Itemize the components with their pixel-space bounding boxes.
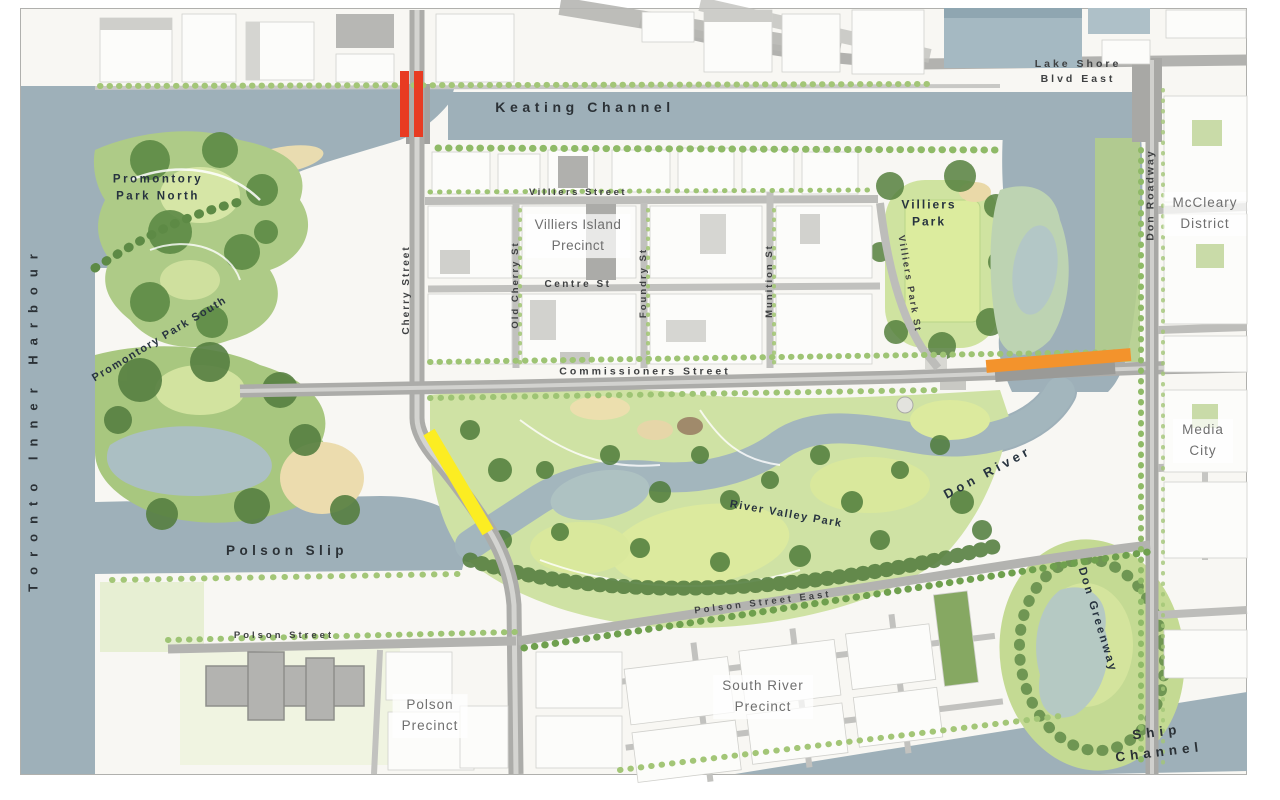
map-artwork — [0, 0, 1280, 800]
portlands-map-page: { "map": { "title": "Port Lands / Villie… — [0, 0, 1280, 800]
marker-red-bridge-west[interactable] — [400, 71, 409, 137]
marker-red-bridge-east[interactable] — [414, 71, 423, 137]
